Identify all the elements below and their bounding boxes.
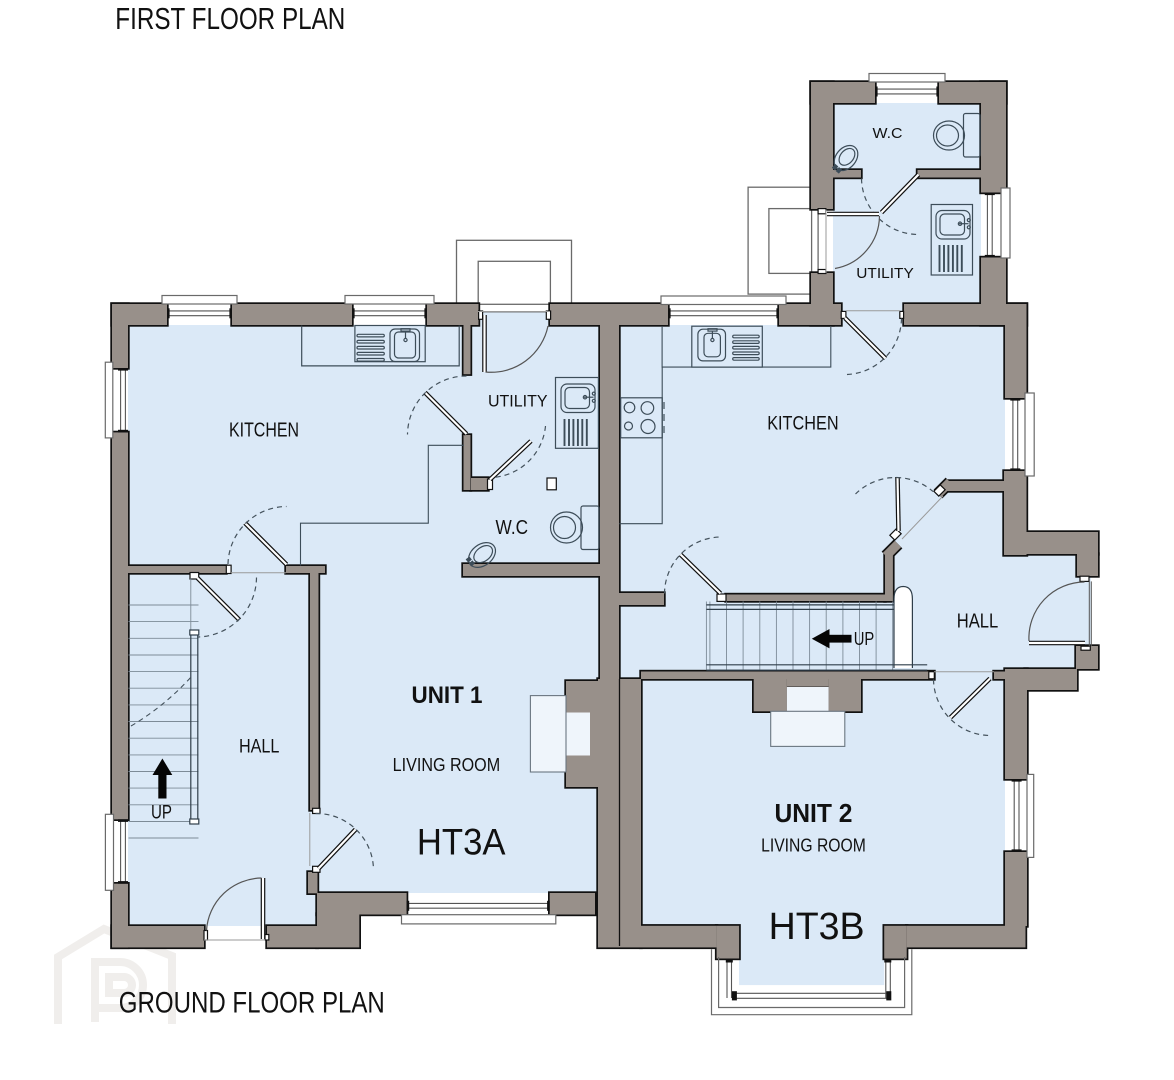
svg-text:HT3B: HT3B xyxy=(769,905,865,947)
svg-text:KITCHEN: KITCHEN xyxy=(229,420,299,442)
svg-text:UTILITY: UTILITY xyxy=(488,393,548,411)
svg-text:W.C: W.C xyxy=(873,125,903,142)
svg-text:W.C: W.C xyxy=(496,517,529,539)
svg-text:GROUND FLOOR PLAN: GROUND FLOOR PLAN xyxy=(119,987,385,1020)
svg-text:LIVING ROOM: LIVING ROOM xyxy=(761,835,866,856)
svg-text:FIRST FLOOR PLAN: FIRST FLOOR PLAN xyxy=(115,2,345,36)
svg-text:UP: UP xyxy=(854,629,875,650)
svg-text:UNIT 1: UNIT 1 xyxy=(412,682,483,709)
svg-text:HALL: HALL xyxy=(239,736,280,757)
svg-text:UTILITY: UTILITY xyxy=(856,266,914,282)
svg-text:LIVING ROOM: LIVING ROOM xyxy=(393,754,501,775)
svg-text:UP: UP xyxy=(151,803,172,824)
svg-text:KITCHEN: KITCHEN xyxy=(767,413,838,435)
svg-text:HALL: HALL xyxy=(957,611,999,633)
svg-text:UNIT 2: UNIT 2 xyxy=(774,800,852,828)
svg-text:HT3A: HT3A xyxy=(417,822,506,863)
